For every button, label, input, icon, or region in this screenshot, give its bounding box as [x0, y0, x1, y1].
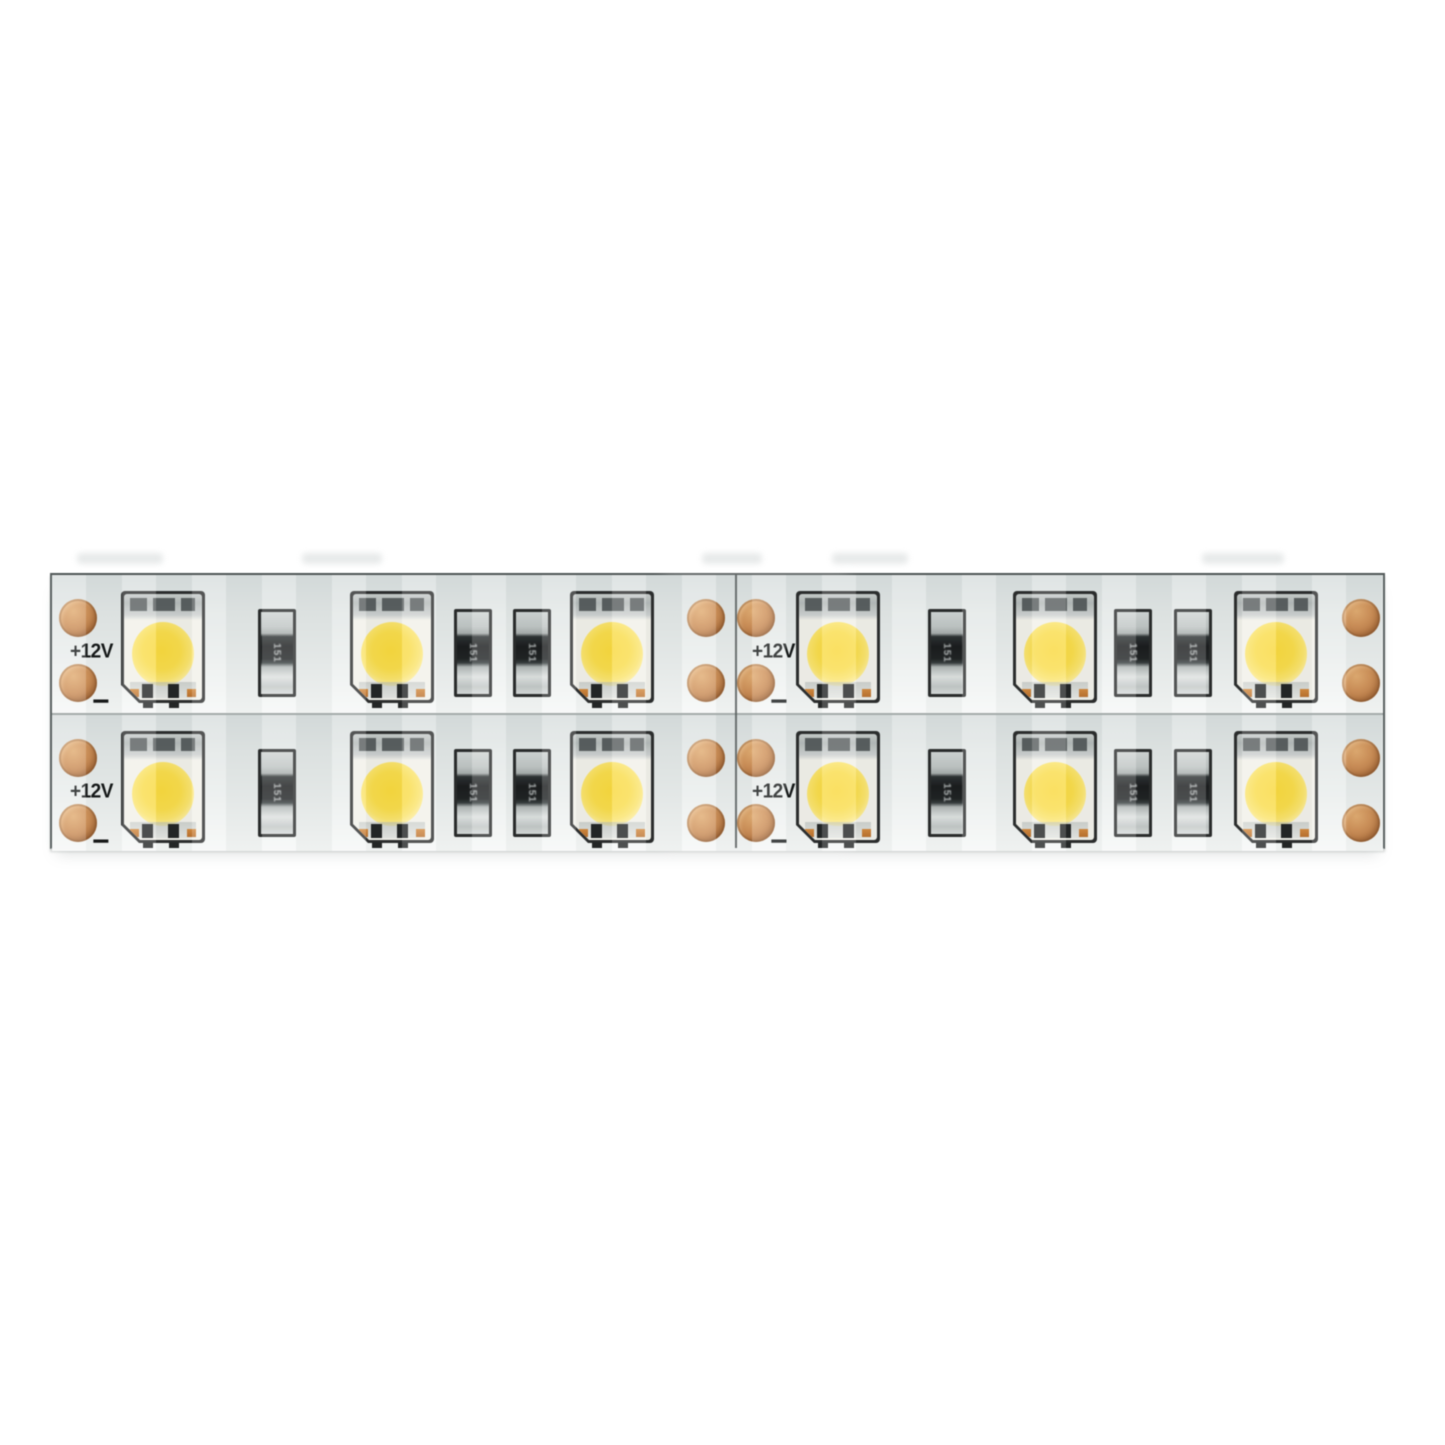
resistor: 151 — [513, 749, 551, 837]
resistor-marking: 151 — [236, 637, 318, 669]
strip-row: +12V +12V − − — [52, 713, 1383, 851]
led-phosphor-dot — [132, 762, 194, 826]
solder-pad — [1342, 599, 1380, 637]
led-chip — [121, 731, 205, 843]
led-phosphor-dot — [807, 762, 869, 826]
resistor: 151 — [258, 749, 296, 837]
led-phosphor-dot — [1245, 622, 1307, 686]
resistor-marking: 151 — [491, 777, 573, 809]
resistor-marking: 151 — [491, 637, 573, 669]
voltage-label: +12V — [752, 780, 795, 803]
led-package-body — [1016, 734, 1094, 840]
led-solder-contacts — [1022, 822, 1088, 838]
led-solder-contacts — [1243, 682, 1309, 698]
led-solder-contacts — [130, 822, 196, 838]
voltage-label: +12V — [70, 640, 113, 663]
solder-pad — [1342, 664, 1380, 702]
cropped-strip-remnant — [832, 553, 908, 564]
resistor: 151 — [454, 749, 492, 837]
led-electrodes — [577, 598, 647, 611]
led-package-body — [1237, 734, 1315, 840]
led-solder-contacts — [579, 822, 645, 838]
cropped-strip-remnant — [77, 553, 163, 564]
segment-cut-line — [735, 575, 737, 848]
led-strip-pcb: +12V +12V − − — [50, 573, 1385, 849]
led-electrodes — [357, 598, 427, 611]
resistor: 151 — [258, 609, 296, 697]
led-electrodes — [577, 738, 647, 751]
led-leads — [1035, 842, 1079, 848]
resistor: 151 — [454, 609, 492, 697]
led-solder-contacts — [805, 822, 871, 838]
negative-label: − — [770, 827, 788, 857]
led-solder-contacts — [1022, 682, 1088, 698]
led-chip — [121, 591, 205, 703]
led-phosphor-dot — [1024, 762, 1086, 826]
cropped-strip-remnant — [702, 553, 762, 564]
resistor-marking: 151 — [906, 637, 988, 669]
strip-row: +12V +12V − − — [52, 575, 1383, 713]
led-leads — [1256, 842, 1300, 848]
led-solder-contacts — [579, 682, 645, 698]
led-solder-contacts — [1243, 822, 1309, 838]
led-electrodes — [1020, 598, 1090, 611]
resistor: 151 — [513, 609, 551, 697]
photo-canvas: +12V +12V − − — [0, 0, 1445, 1445]
solder-pad — [737, 739, 775, 777]
led-chip — [1013, 591, 1097, 703]
voltage-label: +12V — [70, 780, 113, 803]
led-leads — [143, 842, 187, 848]
voltage-label: +12V — [752, 640, 795, 663]
led-phosphor-dot — [807, 622, 869, 686]
led-chip — [1013, 731, 1097, 843]
led-package-body — [799, 734, 877, 840]
cropped-strip-remnant — [1202, 553, 1284, 564]
solder-pad — [687, 739, 725, 777]
led-solder-contacts — [805, 682, 871, 698]
led-leads — [592, 842, 636, 848]
resistor-marking: 151 — [236, 777, 318, 809]
led-leads — [143, 702, 187, 708]
resistor-marking: 151 — [906, 777, 988, 809]
solder-pad — [59, 739, 97, 777]
led-chip — [570, 591, 654, 703]
led-package-body — [353, 734, 431, 840]
led-electrodes — [128, 738, 198, 751]
solder-pad — [737, 599, 775, 637]
led-leads — [818, 842, 862, 848]
led-chip — [350, 731, 434, 843]
led-package-body — [799, 594, 877, 700]
led-package-body — [1237, 594, 1315, 700]
led-leads — [818, 702, 862, 708]
led-phosphor-dot — [581, 622, 643, 686]
led-phosphor-dot — [361, 622, 423, 686]
solder-pad — [687, 599, 725, 637]
led-solder-contacts — [359, 682, 425, 698]
solder-pad — [687, 664, 725, 702]
led-leads — [372, 702, 416, 708]
resistor: 151 — [1174, 609, 1212, 697]
resistor: 151 — [1114, 609, 1152, 697]
solder-pad — [59, 599, 97, 637]
led-chip — [796, 731, 880, 843]
led-leads — [372, 842, 416, 848]
led-package-body — [353, 594, 431, 700]
led-package-body — [124, 734, 202, 840]
led-electrodes — [1241, 738, 1311, 751]
solder-pad — [1342, 739, 1380, 777]
led-leads — [1256, 702, 1300, 708]
resistor: 151 — [1174, 749, 1212, 837]
led-solder-contacts — [130, 682, 196, 698]
cropped-strip-remnant — [302, 553, 382, 564]
resistor-marking: 151 — [1152, 777, 1234, 809]
solder-pad — [687, 804, 725, 842]
led-phosphor-dot — [361, 762, 423, 826]
led-chip — [1234, 731, 1318, 843]
resistor: 151 — [928, 749, 966, 837]
led-package-body — [573, 594, 651, 700]
led-electrodes — [1241, 598, 1311, 611]
led-chip — [350, 591, 434, 703]
led-electrodes — [803, 738, 873, 751]
led-electrodes — [357, 738, 427, 751]
negative-label: − — [92, 827, 110, 857]
led-electrodes — [1020, 738, 1090, 751]
led-chip — [796, 591, 880, 703]
led-phosphor-dot — [1245, 762, 1307, 826]
resistor-marking: 151 — [1152, 637, 1234, 669]
led-electrodes — [803, 598, 873, 611]
led-chip — [1234, 591, 1318, 703]
led-electrodes — [128, 598, 198, 611]
led-phosphor-dot — [132, 622, 194, 686]
led-solder-contacts — [359, 822, 425, 838]
solder-pad — [1342, 804, 1380, 842]
led-phosphor-dot — [581, 762, 643, 826]
led-leads — [592, 702, 636, 708]
led-package-body — [1016, 594, 1094, 700]
resistor: 151 — [928, 609, 966, 697]
led-leads — [1035, 702, 1079, 708]
led-chip — [570, 731, 654, 843]
led-package-body — [124, 594, 202, 700]
resistor: 151 — [1114, 749, 1152, 837]
led-package-body — [573, 734, 651, 840]
led-phosphor-dot — [1024, 622, 1086, 686]
